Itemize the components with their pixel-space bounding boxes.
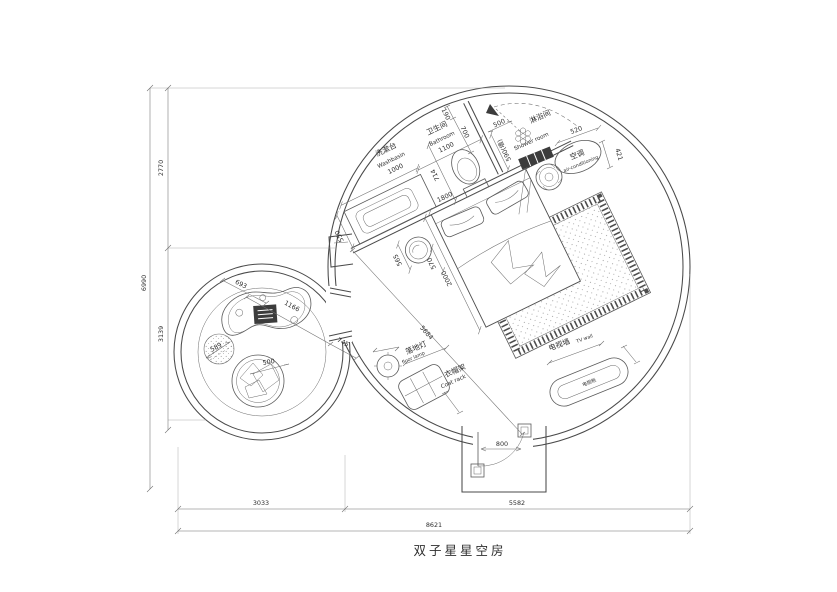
dim-3033-label: 3033 [253, 499, 269, 507]
svg-text:565: 565 [391, 253, 404, 267]
svg-text:550: 550 [333, 229, 346, 243]
kidney-desk [215, 275, 317, 347]
svg-text:淋浴间: 淋浴间 [528, 108, 552, 125]
tvwall-label-en: TV wall [575, 333, 594, 345]
svg-text:421: 421 [613, 147, 624, 161]
dim-310 [373, 347, 399, 352]
ac-unit: 空调 air-conditioning [550, 134, 606, 180]
dim-421: 421 [599, 140, 625, 169]
svg-text:700: 700 [459, 125, 472, 139]
shower-bench [518, 147, 554, 170]
desk-stool [235, 308, 244, 317]
dim-500-shower: 500 [488, 117, 512, 132]
ac-label-cn: 空调 [569, 148, 586, 162]
dim-800-label: 800 [496, 440, 508, 448]
svg-text:500: 500 [262, 357, 275, 367]
dim-400-rack [442, 391, 463, 414]
svg-text:570: 570 [425, 256, 438, 270]
floor-lamp: 落地灯 floor lamp [373, 339, 428, 380]
laptop [253, 304, 277, 324]
dim-590: 590(墙) [487, 128, 518, 174]
dim-6990-label: 6990 [140, 275, 148, 291]
svg-text:590(墙): 590(墙) [495, 138, 513, 163]
tvcab-label-cn: 电视柜 [581, 376, 597, 388]
svg-text:500: 500 [492, 117, 506, 129]
dim-550: 550 [326, 211, 357, 255]
svg-text:5684: 5684 [418, 324, 435, 341]
dim-565: 565 [387, 240, 414, 277]
small-room-wall [174, 264, 350, 440]
dim-520: 520 [555, 124, 601, 146]
drawing-title: 双子星星空房 [413, 543, 506, 558]
dim-693: 693 [220, 278, 269, 305]
floor-plan-page: 800 [0, 0, 837, 592]
dim-2770-label: 2770 [157, 160, 165, 176]
dim-5582-label: 5582 [509, 499, 525, 507]
svg-text:714: 714 [429, 168, 442, 182]
dim-400-tv [621, 345, 640, 364]
svg-text:2000: 2000 [440, 269, 454, 287]
svg-text:693: 693 [234, 278, 249, 291]
floor-plan: 800 [0, 0, 837, 592]
tvwall-label-cn: 电视墙 [547, 336, 571, 352]
dim-3139-label: 3139 [157, 326, 165, 342]
bottom-dimension-lines: 3033 5582 8621 [175, 274, 693, 534]
fan-coil-icon [536, 164, 562, 190]
tv-wall: 电视墙 TV wall 电视柜 [546, 333, 640, 410]
pouf-with-blanket [232, 355, 284, 407]
desk-stool [259, 294, 267, 302]
svg-text:190: 190 [440, 107, 453, 121]
dim-8621-label: 8621 [426, 521, 442, 529]
washbasin-counter [344, 174, 436, 244]
svg-text:1166: 1166 [283, 299, 301, 314]
